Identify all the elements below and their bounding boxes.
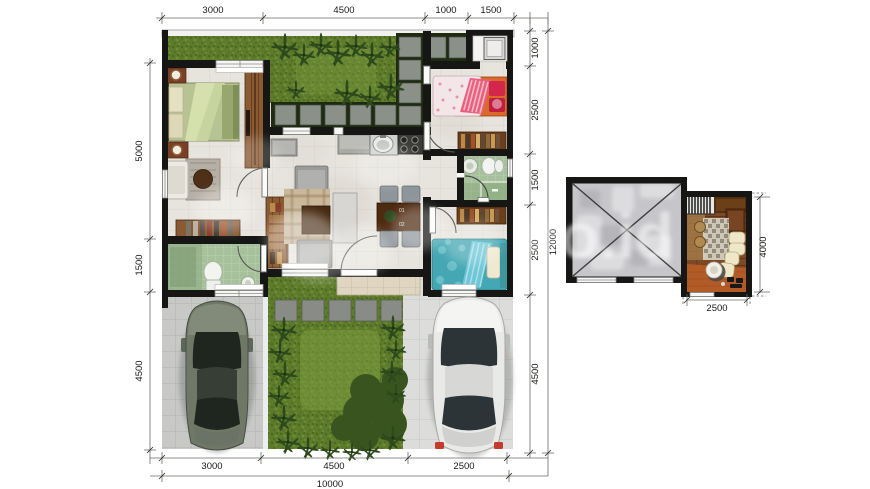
svg-text:1000: 1000 — [530, 37, 541, 58]
svg-text:10000: 10000 — [317, 479, 343, 489]
svg-text:3000: 3000 — [202, 5, 223, 16]
svg-text:5000: 5000 — [134, 140, 145, 161]
svg-text:2500: 2500 — [706, 303, 727, 314]
svg-text:o.id: o.id — [560, 200, 674, 272]
svg-text:1000: 1000 — [435, 5, 456, 16]
svg-text:4500: 4500 — [323, 461, 344, 472]
svg-text:1500: 1500 — [530, 169, 541, 190]
svg-text:4000: 4000 — [758, 236, 769, 257]
svg-text:4500: 4500 — [530, 363, 541, 384]
svg-text:4500: 4500 — [333, 5, 354, 16]
svg-text:4500: 4500 — [134, 360, 145, 381]
svg-text:1500: 1500 — [134, 254, 145, 275]
svg-text:2500: 2500 — [453, 461, 474, 472]
svg-text:1500: 1500 — [480, 5, 501, 16]
svg-text:2500: 2500 — [530, 99, 541, 120]
svg-text:3000: 3000 — [201, 461, 222, 472]
